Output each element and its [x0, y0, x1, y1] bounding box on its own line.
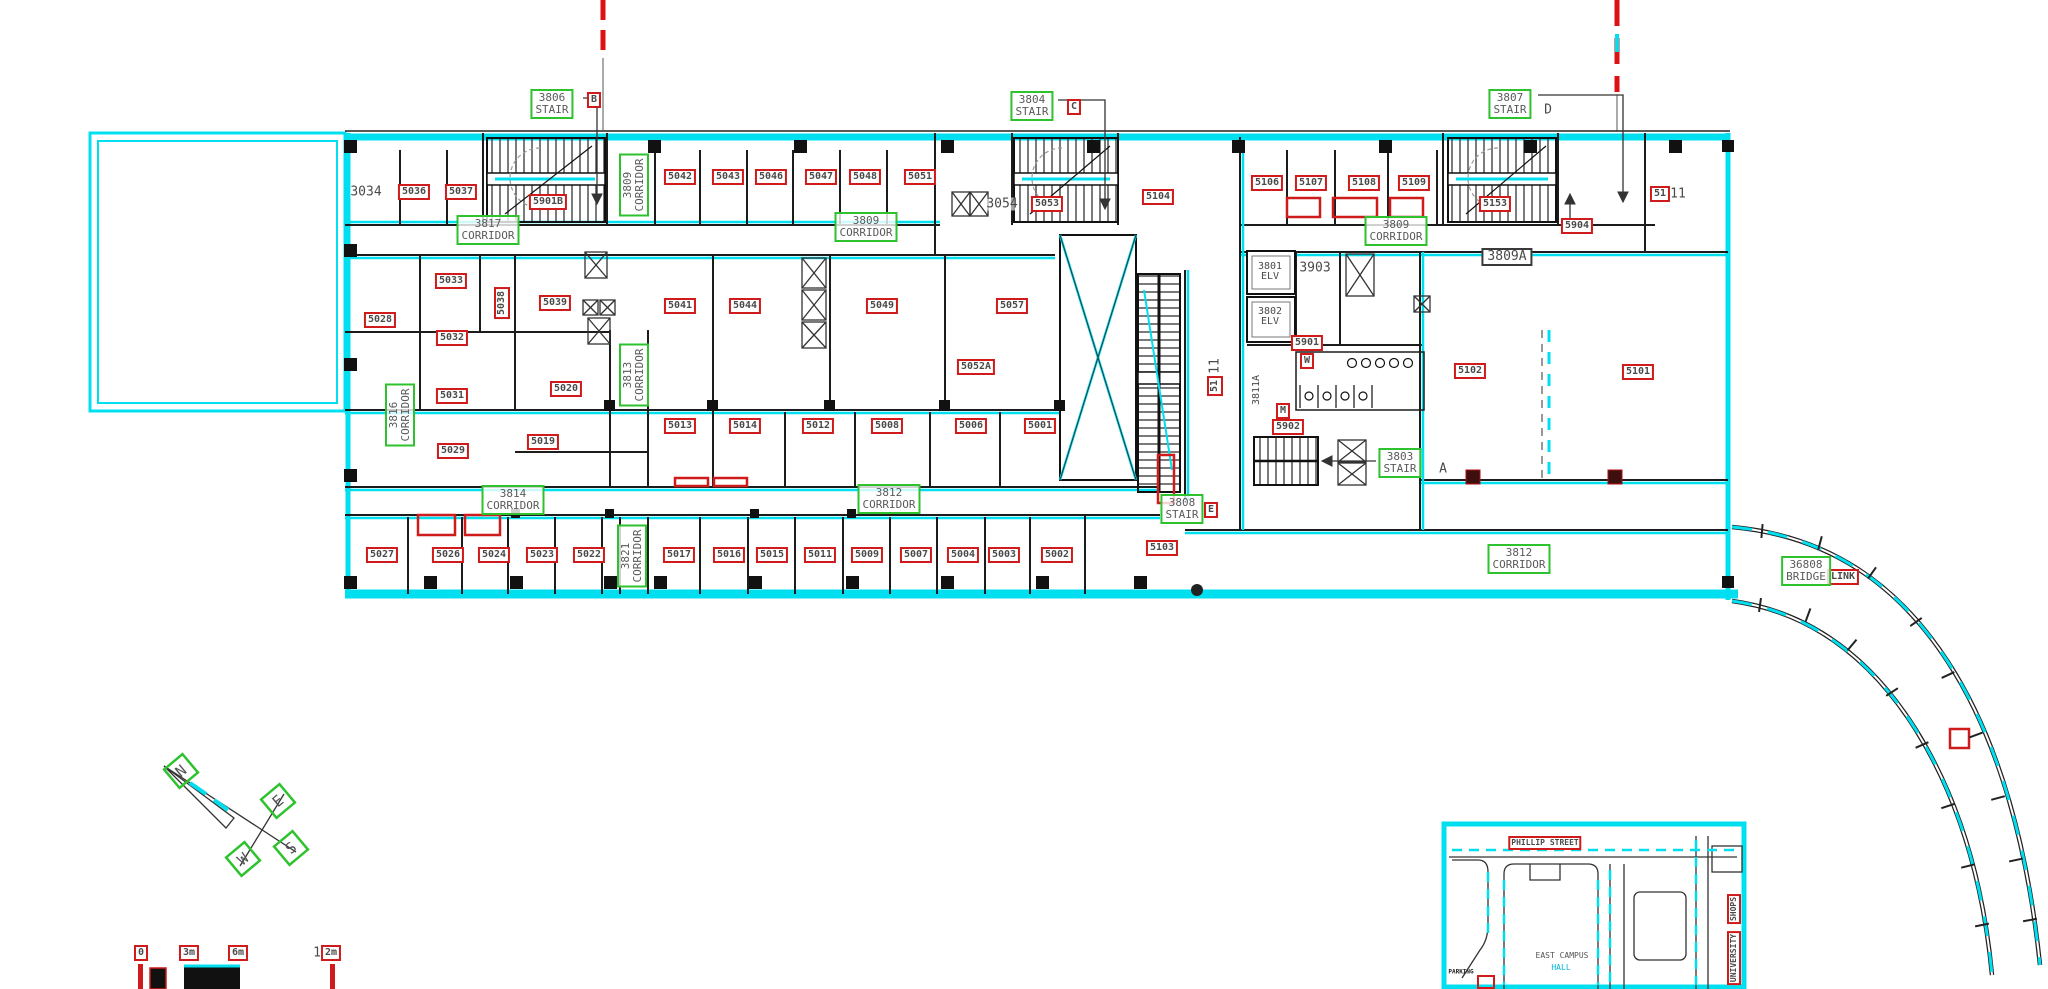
plain-label-11: 11	[1209, 358, 1222, 374]
green-label-3809-corridor: 3809 CORRIDOR	[619, 154, 649, 217]
red-label-5901b: 5901B	[529, 194, 567, 210]
green-label-3817-corridor: 3817 CORRIDOR	[457, 215, 520, 245]
red-label-5020: 5020	[550, 381, 582, 397]
red-label-phillip-street: PHILLIP STREET	[1508, 836, 1581, 850]
red-label-5049: 5049	[866, 298, 898, 314]
plain-label-3802-elv: 3802 ELV	[1258, 307, 1282, 327]
plain-label-1: 1	[313, 947, 321, 960]
green-label-3816-corridor: 3816 CORRIDOR	[385, 384, 415, 447]
red-label-5014: 5014	[729, 418, 761, 434]
red-label-5044: 5044	[729, 298, 761, 314]
red-label-5013: 5013	[664, 418, 696, 434]
plain-label-east-campus: EAST CAMPUS	[1535, 951, 1590, 961]
red-label-5904: 5904	[1561, 218, 1593, 234]
red-label-5017: 5017	[663, 547, 695, 563]
red-label-5019: 5019	[527, 434, 559, 450]
green-label-3809-corridor: 3809 CORRIDOR	[835, 212, 898, 242]
red-label-5103: 5103	[1146, 540, 1178, 556]
green-label-36808-bridge: 36808 BRIDGE	[1781, 556, 1831, 586]
red-label-5022: 5022	[573, 547, 605, 563]
red-label-5015: 5015	[756, 547, 788, 563]
red-label-51: 51	[1207, 376, 1223, 396]
red-label-5004: 5004	[947, 547, 979, 563]
red-label-5046: 5046	[755, 169, 787, 185]
red-label-5048: 5048	[849, 169, 881, 185]
red-label-5051: 5051	[904, 169, 936, 185]
red-label-5001: 5001	[1024, 418, 1056, 434]
red-label-6m: 6m	[228, 945, 248, 961]
green-label-3806-stair: 3806 STAIR	[530, 89, 573, 119]
red-label-5052a: 5052A	[957, 359, 995, 375]
red-label-5047: 5047	[805, 169, 837, 185]
boxed-label-3809a: 3809A	[1481, 248, 1532, 266]
label-layer: 503650375901B504250435046504750485051505…	[0, 0, 2048, 989]
green-label-3812-corridor: 3812 CORRIDOR	[1488, 544, 1551, 574]
red-label-m: M	[1276, 403, 1290, 419]
red-label-5012: 5012	[802, 418, 834, 434]
plain-label-3811a: 3811A	[1252, 375, 1262, 405]
red-label-university: UNIVERSITY	[1727, 931, 1741, 985]
red-label-5107: 5107	[1295, 175, 1327, 191]
red-label-5036: 5036	[398, 184, 430, 200]
red-label-0: 0	[134, 945, 148, 961]
red-label-5002: 5002	[1041, 547, 1073, 563]
red-label-5057: 5057	[996, 298, 1028, 314]
plain-label-d: D	[1544, 104, 1552, 117]
red-label-5009: 5009	[851, 547, 883, 563]
green-label-3814-corridor: 3814 CORRIDOR	[482, 485, 545, 515]
red-label-link: LINK	[1827, 569, 1859, 585]
red-label-5153: 5153	[1479, 196, 1511, 212]
red-label-5102: 5102	[1454, 363, 1486, 379]
red-label-5032: 5032	[436, 330, 468, 346]
green-label-3821-corridor: 3821 CORRIDOR	[617, 525, 647, 588]
plain-label-11: 11	[1670, 188, 1686, 201]
red-label-5038: 5038	[494, 287, 510, 319]
green-label-3803-stair: 3803 STAIR	[1378, 448, 1421, 478]
green-label-3809-corridor: 3809 CORRIDOR	[1365, 216, 1428, 246]
red-label-5053: 5053	[1031, 196, 1063, 212]
red-label-5101: 5101	[1622, 364, 1654, 380]
red-label-5902: 5902	[1272, 419, 1304, 435]
red-label-e: E	[1204, 502, 1218, 518]
red-label-w: W	[1300, 353, 1314, 369]
plain-label-3801-elv: 3801 ELV	[1258, 262, 1282, 282]
red-label-5033: 5033	[435, 273, 467, 289]
red-label-5023: 5023	[526, 547, 558, 563]
plain-label-3054: 3054	[986, 198, 1017, 211]
red-label-5027: 5027	[366, 547, 398, 563]
plain-label-hall: HALL	[1550, 963, 1571, 973]
red-label-5006: 5006	[955, 418, 987, 434]
floorplan-canvas[interactable]: N E S W	[0, 0, 2048, 989]
red-label-5109: 5109	[1398, 175, 1430, 191]
red-label-5042: 5042	[664, 169, 696, 185]
plain-label-3903: 3903	[1299, 262, 1330, 275]
red-label-5028: 5028	[364, 312, 396, 328]
red-label-5108: 5108	[1348, 175, 1380, 191]
red-label-5106: 5106	[1251, 175, 1283, 191]
red-label-5031: 5031	[436, 388, 468, 404]
green-label-3812-corridor: 3812 CORRIDOR	[858, 484, 921, 514]
green-label-3813-corridor: 3813 CORRIDOR	[619, 344, 649, 407]
red-label-5043: 5043	[712, 169, 744, 185]
plain-label-a: A	[1439, 463, 1447, 476]
green-label-3808-stair: 3808 STAIR	[1160, 494, 1203, 524]
red-label-5008: 5008	[871, 418, 903, 434]
red-label-5104: 5104	[1142, 189, 1174, 205]
plain-label-3034: 3034	[350, 186, 381, 199]
red-label-5011: 5011	[804, 547, 836, 563]
red-label-51: 51	[1650, 186, 1670, 202]
red-label-5024: 5024	[478, 547, 510, 563]
green-label-3807-stair: 3807 STAIR	[1488, 89, 1531, 119]
red-label-5026: 5026	[432, 547, 464, 563]
red-label-5029: 5029	[437, 443, 469, 459]
red-label-5037: 5037	[445, 184, 477, 200]
green-label-3804-stair: 3804 STAIR	[1010, 91, 1053, 121]
red-label-3m: 3m	[179, 945, 199, 961]
red-label-5039: 5039	[539, 295, 571, 311]
red-label-5016: 5016	[713, 547, 745, 563]
red-label-shops: SHOPS	[1727, 894, 1741, 924]
red-label-b: B	[587, 92, 601, 108]
red-label-c: C	[1067, 99, 1081, 115]
plain-label-parking: PARKING	[1448, 966, 1473, 979]
red-label-5041: 5041	[664, 298, 696, 314]
red-label-2m: 2m	[321, 945, 341, 961]
red-label-5003: 5003	[988, 547, 1020, 563]
red-label-5901: 5901	[1291, 335, 1323, 351]
red-label-5007: 5007	[900, 547, 932, 563]
